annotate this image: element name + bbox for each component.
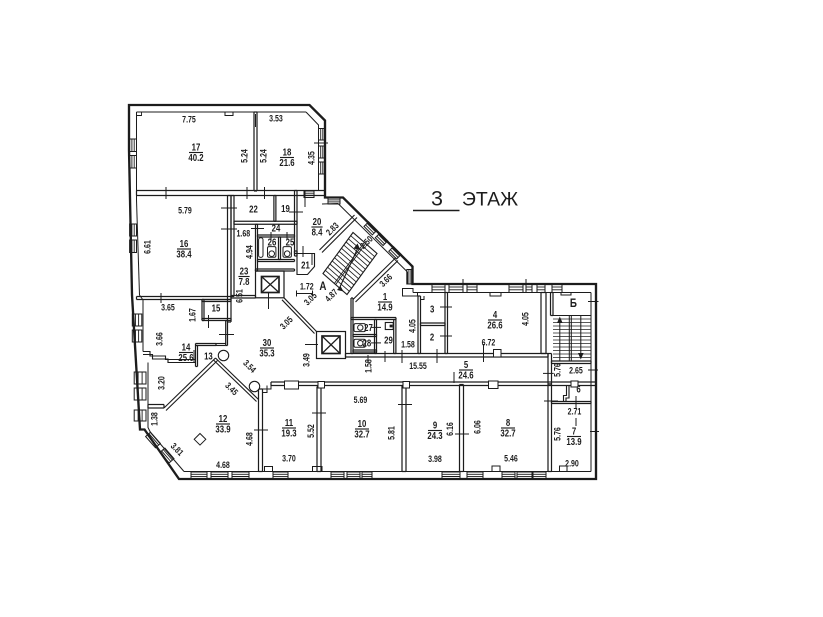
svg-text:5.24: 5.24 xyxy=(258,149,268,163)
svg-text:1.38: 1.38 xyxy=(149,412,159,426)
svg-text:4.35: 4.35 xyxy=(306,151,316,165)
svg-text:25.6: 25.6 xyxy=(178,352,193,363)
svg-text:1.72: 1.72 xyxy=(300,282,314,292)
svg-text:1.68: 1.68 xyxy=(236,228,250,238)
svg-text:А: А xyxy=(319,281,326,294)
svg-text:2.90: 2.90 xyxy=(565,458,579,468)
svg-text:25: 25 xyxy=(286,236,295,247)
svg-text:6.72: 6.72 xyxy=(482,338,496,348)
svg-text:5.46: 5.46 xyxy=(504,453,518,463)
svg-text:5.52: 5.52 xyxy=(306,424,316,438)
svg-text:28: 28 xyxy=(363,337,372,348)
svg-text:3.66: 3.66 xyxy=(154,332,164,346)
svg-text:13.9: 13.9 xyxy=(566,436,581,447)
svg-text:4.05: 4.05 xyxy=(520,312,530,326)
svg-text:3.70: 3.70 xyxy=(282,453,296,463)
svg-text:13: 13 xyxy=(204,351,213,362)
svg-text:15.55: 15.55 xyxy=(409,361,427,371)
svg-text:32.7: 32.7 xyxy=(500,427,515,438)
svg-text:40.2: 40.2 xyxy=(188,152,203,163)
svg-text:5.81: 5.81 xyxy=(386,426,396,440)
svg-text:7.8: 7.8 xyxy=(239,276,250,287)
svg-text:3.98: 3.98 xyxy=(428,454,442,464)
svg-text:21: 21 xyxy=(301,259,310,270)
svg-text:35.3: 35.3 xyxy=(259,347,274,358)
svg-text:5.76: 5.76 xyxy=(552,427,562,441)
svg-text:5.79: 5.79 xyxy=(178,205,192,215)
svg-text:3.49: 3.49 xyxy=(301,353,311,367)
svg-text:8.4: 8.4 xyxy=(312,226,323,237)
svg-text:6: 6 xyxy=(576,384,580,395)
svg-text:2.65: 2.65 xyxy=(569,365,583,375)
svg-text:26: 26 xyxy=(268,236,277,247)
svg-text:2.71: 2.71 xyxy=(568,406,582,416)
svg-text:4.68: 4.68 xyxy=(244,432,254,446)
svg-text:6.06: 6.06 xyxy=(472,420,482,434)
svg-text:4.68: 4.68 xyxy=(216,460,230,470)
svg-text:7.75: 7.75 xyxy=(182,114,196,124)
svg-text:2: 2 xyxy=(430,332,434,343)
svg-text:1.58: 1.58 xyxy=(401,340,415,350)
svg-text:Б: Б xyxy=(570,298,577,311)
svg-text:19: 19 xyxy=(281,203,290,214)
svg-text:5.76: 5.76 xyxy=(552,363,562,377)
svg-text:29: 29 xyxy=(384,335,393,346)
svg-text:6.16: 6.16 xyxy=(445,422,455,436)
svg-text:22: 22 xyxy=(249,203,258,214)
svg-text:19.3: 19.3 xyxy=(281,427,296,438)
svg-text:33.9: 33.9 xyxy=(215,423,230,434)
svg-text:3.53: 3.53 xyxy=(269,113,283,123)
svg-text:5.69: 5.69 xyxy=(354,395,368,405)
svg-text:3: 3 xyxy=(431,187,443,211)
svg-text:24.3: 24.3 xyxy=(427,430,442,441)
svg-text:6.61: 6.61 xyxy=(142,240,152,254)
svg-text:27: 27 xyxy=(364,322,373,333)
svg-text:38.4: 38.4 xyxy=(176,248,191,259)
svg-text:1.67: 1.67 xyxy=(187,308,197,322)
svg-text:1.58: 1.58 xyxy=(363,359,373,373)
svg-text:15: 15 xyxy=(212,303,221,314)
svg-text:24.6: 24.6 xyxy=(458,369,473,380)
svg-text:3.65: 3.65 xyxy=(161,302,175,312)
svg-text:4.94: 4.94 xyxy=(244,245,254,259)
svg-text:6.51: 6.51 xyxy=(234,289,244,303)
svg-text:21.6: 21.6 xyxy=(279,157,294,168)
svg-text:3.20: 3.20 xyxy=(156,376,166,390)
svg-text:4.05: 4.05 xyxy=(407,319,417,333)
svg-text:32.7: 32.7 xyxy=(354,428,369,439)
svg-text:3: 3 xyxy=(430,304,434,315)
svg-text:26.6: 26.6 xyxy=(487,319,502,330)
svg-text:5.24: 5.24 xyxy=(239,149,249,163)
svg-text:14.9: 14.9 xyxy=(377,301,392,312)
svg-text:24: 24 xyxy=(272,223,281,234)
svg-text:ЭТАЖ: ЭТАЖ xyxy=(462,189,518,211)
